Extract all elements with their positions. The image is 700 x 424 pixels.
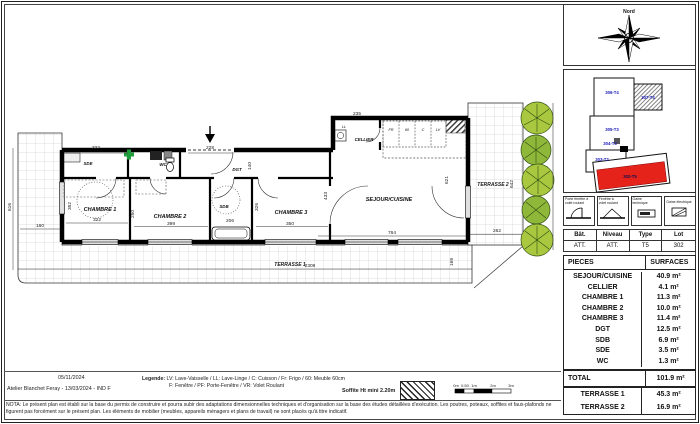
key-plan-unit-302: 302-T5 [623,174,637,179]
room-area: 6.9 m² [641,336,695,347]
room-area: 16.9 m² [641,401,695,414]
door-swings [77,128,464,224]
table-row: CHAMBRE 311.4 m² [564,314,695,325]
key-plan-unit-307: 307-T4 [641,95,655,100]
windows [58,182,472,246]
legend-title: Legende: [142,376,165,382]
dim-228: 228 [206,145,214,151]
legend-text: technique [633,201,648,205]
dim-399: 399 [167,221,175,227]
title-block-panel: Nord [563,4,696,415]
lot-value: T5 [630,241,663,251]
firm-line: Atelier Blanchet Feray - 13/03/2024 - IN… [7,386,111,393]
room-name: DGT [564,325,641,336]
scale-label: 2m [490,383,496,388]
lot-header: Bât. [564,230,597,241]
key-plan-box: 306-T4 307-T4 305-T3 304-T3 303-T2 302-T… [563,69,696,193]
compass-box: Nord [563,4,696,66]
room-label-chambre2: CHAMBRE 2 [154,214,187,220]
lot-value: ATT. [564,241,597,251]
room-label-wc: WC [159,162,167,167]
dim-621: 621 [444,176,450,184]
room-area: 11.3 m² [641,293,695,304]
lot-info-table: Bât. Niveau Type Lot ATT. ATT. T5 302 [563,229,696,252]
room-area: 12.5 m² [641,325,695,336]
table-row: SDE3.5 m² [564,346,695,357]
compass-rose-icon: Nord [564,5,695,65]
lot-value: ATT. [597,241,630,251]
dim-352: 352 [67,202,73,210]
room-area: 1.3 m² [641,357,695,368]
dim-169: 169 [449,258,455,266]
total-value: 101.9 m² [645,371,695,386]
legend-gaine-electrique: Gaine électrique [664,196,696,226]
room-name: CHAMBRE 3 [564,314,641,325]
legend-text: volet roulant [565,201,584,205]
room-label-chambre1: CHAMBRE 1 [84,207,117,213]
appliance-fr: FR [388,128,393,132]
room-label-sde: SDE [83,161,93,166]
legend-line2: F: Fenêtre / PF: Porte-Fenêtre / VR: Vol… [169,383,284,389]
soffite-hatch [446,120,465,133]
room-name: WC [564,357,641,368]
dim-235: 235 [353,111,361,117]
title-strip-divider [4,371,561,372]
dim-764: 764 [388,230,396,236]
table-row: WC1.3 m² [564,357,695,368]
appliance-lv: LV [436,128,441,132]
total-label: TOTAL [564,371,645,386]
room-label-sdb: SDB [219,204,229,209]
surfaces-total-row: TOTAL 101.9 m² [564,369,695,388]
surfaces-header-row: PIECES SURFACES [564,256,695,270]
dim-322-ch1: 322 [93,217,101,223]
nota-line1: NOTA: Le présent plan est établi sur la … [6,402,560,409]
legend-fenetre: Fenêtre à volet roulant [597,196,629,226]
dim-160: 160 [36,223,44,229]
lot-header: Niveau [597,230,630,241]
room-area: 10.0 m² [641,304,695,315]
room-label-terrasse1: TERRASSE 1 [274,262,306,268]
surfaces-body: SEJOUR/CUISINE40.9 m² CELLIER4.1 m² CHAM… [564,270,695,369]
room-name: SDE [564,346,641,357]
table-row: DGT12.5 m² [564,325,695,336]
lot-value: 302 [662,241,695,251]
room-name: CHAMBRE 1 [564,293,641,304]
compass-north-label: Nord [623,9,635,15]
legend-text: volet roulant [599,201,618,205]
room-name: SEJOUR/CUISINE [564,272,641,283]
legend-porte-fenetre: Porte fenêtre à volet roulant [563,196,595,226]
lot-header: Type [630,230,663,241]
terrasses-section: TERRASSE 145.3 m² TERRASSE 216.9 m² [564,388,695,414]
table-row: SDB6.9 m² [564,336,695,347]
porte-fenetre-icon [565,206,592,220]
scale-label: 1m [471,383,477,388]
surfaces-header-surfaces: SURFACES [645,256,695,269]
appliance-c: C [422,128,425,132]
dim-642: 642 [509,180,515,188]
room-name: TERRASSE 2 [564,401,641,414]
room-label-cellier: CELLIER [355,137,375,142]
nota-line2: figurent pas forcément sur le présent pl… [6,409,560,416]
print-date: 05/11/2024 [58,375,85,382]
legend-text: Gaine électrique [666,200,692,204]
room-label-chambre3: CHAMBRE 3 [275,210,308,216]
key-plan-unit-303: 303-T2 [595,157,609,162]
room-area: 45.3 m² [641,388,695,401]
room-label-terrasse2: TERRASSE 2 [477,182,509,188]
dim-262: 262 [493,228,501,234]
planter-plants [521,102,554,256]
table-row: TERRASSE 145.3 m² [564,388,695,401]
nota-divider [4,400,561,401]
soffite-note: Soffite Ht mini 2.20m [342,388,395,395]
room-name: CELLIER [564,283,641,294]
dim-433: 433 [323,192,329,200]
room-area: 11.4 m² [641,314,695,325]
dim-250: 250 [130,210,136,218]
scale-label: 0m [453,383,459,388]
exterior-walls [62,118,468,242]
dim-2309: 2309 [305,263,316,269]
room-name: TERRASSE 1 [564,388,641,401]
abbreviation-legend: Legende: LV: Lave-Vaisselle / LL: Lave-L… [142,376,352,389]
fenetre-icon [599,206,626,220]
kitchen-counter [383,121,446,147]
dim-140: 140 [247,162,253,170]
symbol-legend-row: Porte fenêtre à volet roulant Fenêtre à … [563,196,696,226]
lot-header: Lot [662,230,695,241]
floor-plan-drawing: SDE WC DGT CHAMBRE 1 CHAMBRE 2 SDB CHAMB… [0,0,560,370]
key-plan-core [620,146,628,152]
scale-label: 0.50 [461,383,470,388]
key-plan-unit-306: 306-T4 [605,90,619,95]
gaine-electrique-icon [666,205,693,219]
room-area: 40.9 m² [641,272,695,283]
room-area: 3.5 m² [641,346,695,357]
surfaces-header-pieces: PIECES [564,256,645,269]
soffite-hatch-swatch [400,381,435,400]
table-row: CHAMBRE 210.0 m² [564,304,695,315]
dim-326: 326 [254,203,260,211]
key-plan-unit-304: 304-T3 [603,141,617,146]
terrace-boundary-diagonal [474,246,523,288]
legend-line1: LV: Lave-Vaisselle / LL: Lave-Linge / C:… [167,376,345,382]
legend-gaine-technique: Gaine technique [631,196,663,226]
room-name: CHAMBRE 2 [564,304,641,315]
entry-arrow-icon [205,126,215,143]
terrasse2-deck [468,103,523,245]
room-name: SDB [564,336,641,347]
table-row: CELLIER4.1 m² [564,283,695,294]
surfaces-table: PIECES SURFACES SEJOUR/CUISINE40.9 m² CE… [563,255,696,415]
room-label-sejour: SEJOUR/CUISINE [366,197,413,203]
table-row: SEJOUR/CUISINE40.9 m² [564,272,695,283]
dim-206: 206 [226,218,234,224]
dim-350: 350 [286,221,294,227]
gaine-technique-icon [633,206,660,220]
table-row: TERRASSE 216.9 m² [564,401,695,414]
scale-label: 3m [508,383,514,388]
plan-sheet: SDE WC DGT CHAMBRE 1 CHAMBRE 2 SDB CHAMB… [0,0,700,424]
room-area: 4.1 m² [641,283,695,294]
appliance-ll: LL [342,125,346,129]
dim-322-top: 322 [92,145,100,151]
dim-616: 616 [7,203,13,211]
appliance-60: 60 [405,128,410,132]
key-plan-unit-305: 305-T3 [605,127,619,132]
room-label-dgt: DGT [232,167,242,172]
graphic-scale-bar: 0m 0.50 1m 2m 3m [453,382,533,399]
table-row: CHAMBRE 111.3 m² [564,293,695,304]
